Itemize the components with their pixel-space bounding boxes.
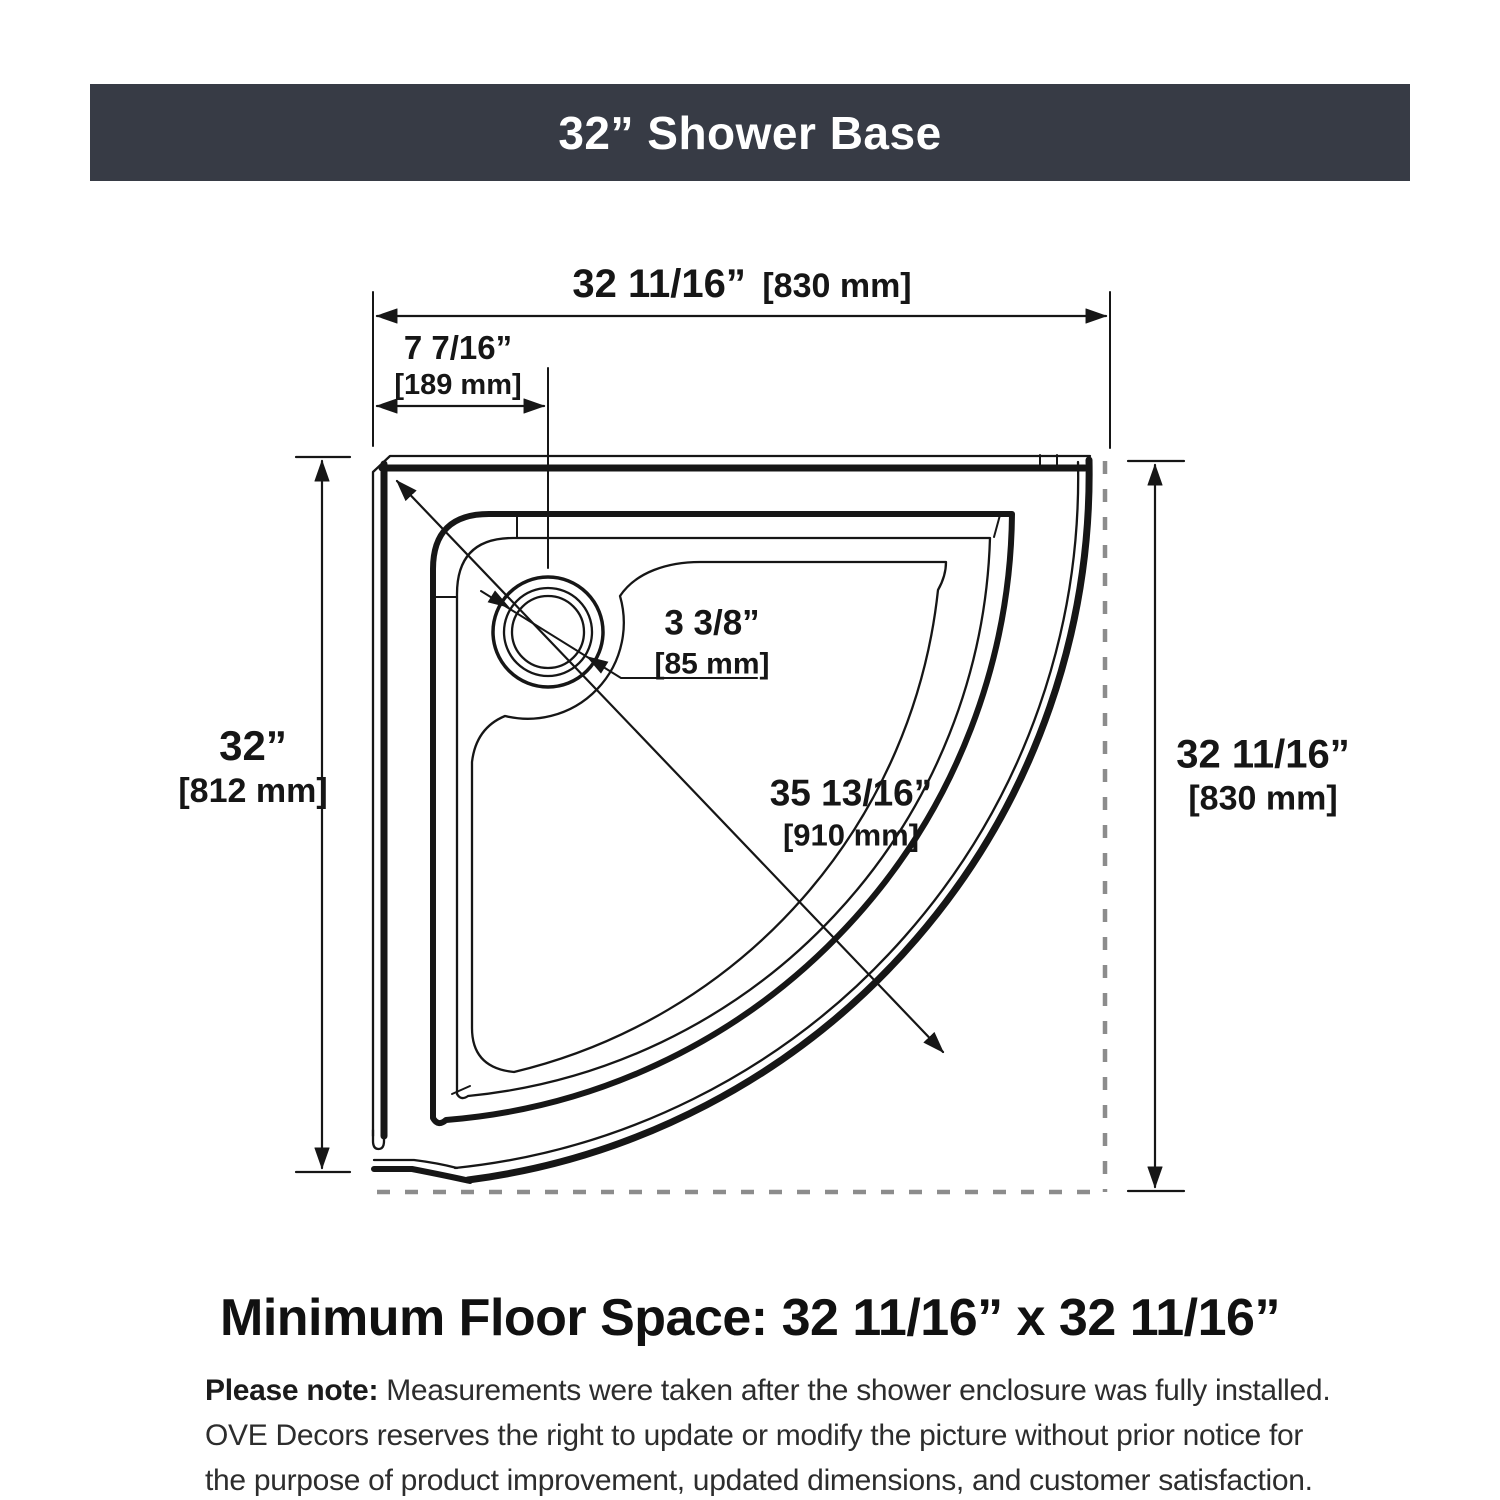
note-line-1: Please note: Measurements were taken aft… xyxy=(205,1368,1325,1413)
label-diagonal: 35 13/16” [910 mm] xyxy=(770,774,933,853)
label-overall-width: 32 11/16” [830 mm] xyxy=(572,262,911,306)
label-left-height: 32” [812 mm] xyxy=(178,723,327,811)
bottom-apron-thick xyxy=(374,1169,470,1181)
note-line-2: OVE Decors reserves the right to update … xyxy=(205,1413,1325,1458)
label-drain-diameter: 3 3/8” [85 mm] xyxy=(654,604,769,680)
label-right-height: 32 11/16” [830 mm] xyxy=(1176,732,1350,817)
drain-diameter-mm: [85 mm] xyxy=(654,647,769,680)
diagonal-mm: [910 mm] xyxy=(783,818,919,852)
left-height-inches: 32” xyxy=(219,723,287,769)
note-paragraph: Please note: Measurements were taken aft… xyxy=(205,1368,1325,1500)
overall-width-mm: [830 mm] xyxy=(762,267,911,305)
base-outline xyxy=(373,456,1090,1181)
note-label: Please note: xyxy=(205,1374,378,1407)
rim-and-floor xyxy=(433,455,1057,1123)
right-height-mm: [830 mm] xyxy=(1188,780,1337,817)
drain-offset-mm: [189 mm] xyxy=(394,370,521,402)
dim-line-diagonal xyxy=(397,481,943,1052)
left-height-mm: [812 mm] xyxy=(178,773,327,810)
rim-seam-bottom xyxy=(452,1086,470,1094)
drain-diameter-inches: 3 3/8” xyxy=(664,604,759,643)
diagonal-inches: 35 13/16” xyxy=(770,774,933,815)
min-floor-space-heading: Minimum Floor Space: 32 11/16” x 32 11/1… xyxy=(205,1288,1295,1348)
rim-seam-right xyxy=(994,515,1000,537)
right-height-inches: 32 11/16” xyxy=(1176,732,1350,776)
overall-width-inches: 32 11/16” xyxy=(572,262,746,306)
note-line-3: the purpose of product improvement, upda… xyxy=(205,1458,1325,1500)
label-drain-offset: 7 7/16” [189 mm] xyxy=(394,330,521,402)
note-line-1-text: Measurements were taken after the shower… xyxy=(386,1374,1330,1407)
dimension-lines xyxy=(296,292,1184,1191)
product-dimension-sheet: 32” Shower Base xyxy=(0,0,1500,1500)
drain-offset-inches: 7 7/16” xyxy=(404,330,512,366)
outer-thin-edge xyxy=(373,456,1090,1136)
